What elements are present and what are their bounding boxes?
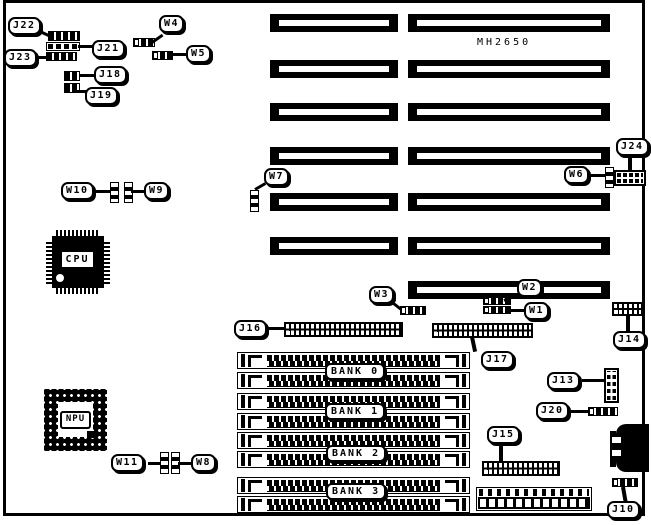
slot-stripe xyxy=(279,243,389,249)
pin-cells xyxy=(617,173,643,183)
npu-label: NPU xyxy=(60,411,91,429)
power-sockets xyxy=(478,497,590,509)
w11-pointer xyxy=(148,462,161,465)
cpu-pins-left xyxy=(46,240,52,284)
callout-j18: J18 xyxy=(94,66,127,84)
cpu-pins-right xyxy=(104,240,110,284)
simm-end xyxy=(462,395,466,408)
j20-pointer xyxy=(571,410,589,413)
simm-latch xyxy=(445,480,459,492)
j18-connector xyxy=(64,71,80,81)
expansion-slot xyxy=(270,193,398,211)
kbd-notch xyxy=(612,450,621,456)
callout-j14: J14 xyxy=(613,331,646,349)
w6-jumper xyxy=(605,167,614,188)
callout-w5: W5 xyxy=(186,45,211,63)
w10-pointer xyxy=(95,190,111,193)
keyboard-din-connector xyxy=(616,424,649,472)
cpu-chip: CPU xyxy=(52,236,104,288)
expansion-slot xyxy=(408,14,610,32)
simm-end xyxy=(462,434,466,447)
simm-latch xyxy=(248,454,262,466)
slot-stripe xyxy=(279,199,389,205)
j21-pointer xyxy=(78,45,93,48)
power-connector xyxy=(476,487,592,511)
simm-end xyxy=(241,415,245,428)
slot-stripe xyxy=(417,199,601,205)
cpu-label: CPU xyxy=(62,252,93,267)
j14-connector xyxy=(612,302,643,316)
pin1-marker xyxy=(484,298,489,304)
pin1-marker xyxy=(134,39,139,46)
pin-cells xyxy=(434,325,531,336)
callout-w2: W2 xyxy=(517,279,542,297)
slot-stripe xyxy=(279,66,389,72)
callout-j22: J22 xyxy=(8,17,41,35)
slot-stripe xyxy=(279,153,389,159)
expansion-slot xyxy=(408,60,610,78)
slot-stripe xyxy=(417,109,601,115)
npu-socket: NPU xyxy=(44,389,107,451)
callout-w10: W10 xyxy=(61,182,94,200)
callout-j19: J19 xyxy=(85,87,118,105)
callout-w9: W9 xyxy=(144,182,169,200)
w8-pointer xyxy=(178,462,192,465)
simm-end xyxy=(462,498,466,511)
pin-cells xyxy=(251,191,258,211)
npu-inner: NPU xyxy=(58,402,93,437)
callout-j17: J17 xyxy=(481,351,514,369)
pin-cells xyxy=(484,463,558,474)
bank2-label: BANK 2 xyxy=(326,445,386,462)
callout-w1: W1 xyxy=(524,302,549,320)
expansion-slot xyxy=(270,14,398,32)
j17-connector xyxy=(432,323,533,338)
simm-latch xyxy=(248,355,262,367)
callout-w4: W4 xyxy=(159,15,184,33)
kbd-notch xyxy=(612,437,621,443)
pin-cells xyxy=(480,499,588,507)
j21-connector xyxy=(46,42,80,51)
callout-j15: J15 xyxy=(487,426,520,444)
expansion-slot xyxy=(408,193,610,211)
w3-jumper xyxy=(400,306,426,315)
cpu-pins-top xyxy=(56,230,100,236)
j10-connector xyxy=(612,478,638,487)
pin-cells xyxy=(111,183,118,202)
j20-connector xyxy=(588,407,618,416)
simm-end xyxy=(241,354,245,367)
callout-j21: J21 xyxy=(92,40,125,58)
callout-j24: J24 xyxy=(616,138,649,156)
w7-jumper xyxy=(250,190,259,212)
simm-end xyxy=(241,395,245,408)
j13-connector xyxy=(604,368,619,403)
pin-cells xyxy=(47,53,76,60)
j18-pointer xyxy=(79,74,95,77)
pin-cells xyxy=(286,324,401,335)
j16-pointer xyxy=(266,327,285,330)
callout-w8: W8 xyxy=(191,454,216,472)
slot-stripe xyxy=(279,20,389,26)
simm-latch xyxy=(445,375,459,387)
callout-w6: W6 xyxy=(564,166,589,184)
simm-end xyxy=(241,498,245,511)
simm-end xyxy=(241,434,245,447)
simm-latch xyxy=(445,416,459,428)
slot-stripe xyxy=(417,243,601,249)
power-pins xyxy=(479,489,589,496)
slot-stripe xyxy=(417,20,601,26)
pin-cells xyxy=(606,168,613,187)
slot-stripe xyxy=(417,287,601,293)
w6-pointer xyxy=(591,174,606,177)
motherboard-diagram: MH2650 CPU xyxy=(0,0,651,525)
pin1-marker xyxy=(613,479,618,486)
callout-w3: W3 xyxy=(369,286,394,304)
w5-jumper xyxy=(152,51,173,60)
simm-end xyxy=(462,479,466,492)
w5-pointer xyxy=(172,53,187,56)
simm-latch xyxy=(248,416,262,428)
pin-cells xyxy=(49,32,79,40)
simm-latch xyxy=(248,499,262,511)
npu-pin1-marker xyxy=(87,431,94,438)
simm-latch xyxy=(248,396,262,408)
w10-jumper xyxy=(110,182,119,203)
slot-stripe xyxy=(417,153,601,159)
simm-end xyxy=(462,374,466,387)
expansion-slot xyxy=(270,103,398,121)
j23-pointer xyxy=(37,56,48,59)
expansion-slot xyxy=(270,237,398,255)
board-model-label: MH2650 xyxy=(477,37,531,48)
w1-pointer xyxy=(509,309,525,312)
simm-end xyxy=(462,415,466,428)
j14-pointer xyxy=(626,316,630,332)
expansion-slot xyxy=(408,103,610,121)
callout-j13: J13 xyxy=(547,372,580,390)
cpu-pins-bottom xyxy=(56,288,100,294)
w11-jumper xyxy=(160,452,169,474)
pin-cells xyxy=(48,44,78,49)
cpu-pin1-dot xyxy=(56,274,64,282)
callout-j16: J16 xyxy=(234,320,267,338)
w9-pointer xyxy=(131,190,145,193)
simm-latch xyxy=(445,499,459,511)
pin-cells xyxy=(607,371,616,400)
simm-contacts xyxy=(267,499,440,511)
callout-j10: J10 xyxy=(607,501,640,519)
j15-pointer xyxy=(499,443,503,461)
slot-stripe xyxy=(279,109,389,115)
simm-latch xyxy=(445,435,459,447)
bank1-label: BANK 1 xyxy=(325,403,385,420)
pin1-marker xyxy=(153,52,158,59)
bank0-label: BANK 0 xyxy=(325,363,385,380)
simm-latch xyxy=(445,355,459,367)
pin1-marker xyxy=(434,332,438,336)
expansion-slot xyxy=(270,60,398,78)
j22-connector xyxy=(48,31,80,41)
j13-pointer xyxy=(582,379,605,382)
simm-latch xyxy=(445,454,459,466)
simm-latch xyxy=(248,480,262,492)
expansion-slot xyxy=(270,147,398,165)
callout-j23: J23 xyxy=(4,49,37,67)
pin1-marker xyxy=(614,310,618,314)
simm-end xyxy=(462,354,466,367)
pin1-marker xyxy=(484,307,489,313)
callout-j20: J20 xyxy=(536,402,569,420)
simm-end xyxy=(241,479,245,492)
simm-end xyxy=(241,374,245,387)
slot-stripe xyxy=(417,66,601,72)
pin1-marker xyxy=(484,470,488,474)
j23-connector xyxy=(46,52,77,61)
j24-connector xyxy=(614,170,646,186)
j16-connector xyxy=(284,322,403,337)
pin1-marker xyxy=(286,331,290,335)
simm-latch xyxy=(248,435,262,447)
expansion-slot xyxy=(408,147,610,165)
pin-cells xyxy=(614,304,641,314)
simm-end xyxy=(462,453,466,466)
callout-w7: W7 xyxy=(264,168,289,186)
expansion-slot xyxy=(408,237,610,255)
simm-latch xyxy=(248,375,262,387)
pin-cells xyxy=(65,72,79,80)
w1-jumper xyxy=(483,306,511,314)
pin1-marker xyxy=(589,408,594,415)
callout-w11: W11 xyxy=(111,454,144,472)
simm-latch xyxy=(445,396,459,408)
pin-cells xyxy=(161,453,168,473)
j15-connector xyxy=(482,461,560,476)
bank3-label: BANK 3 xyxy=(326,483,386,500)
simm-end xyxy=(241,453,245,466)
